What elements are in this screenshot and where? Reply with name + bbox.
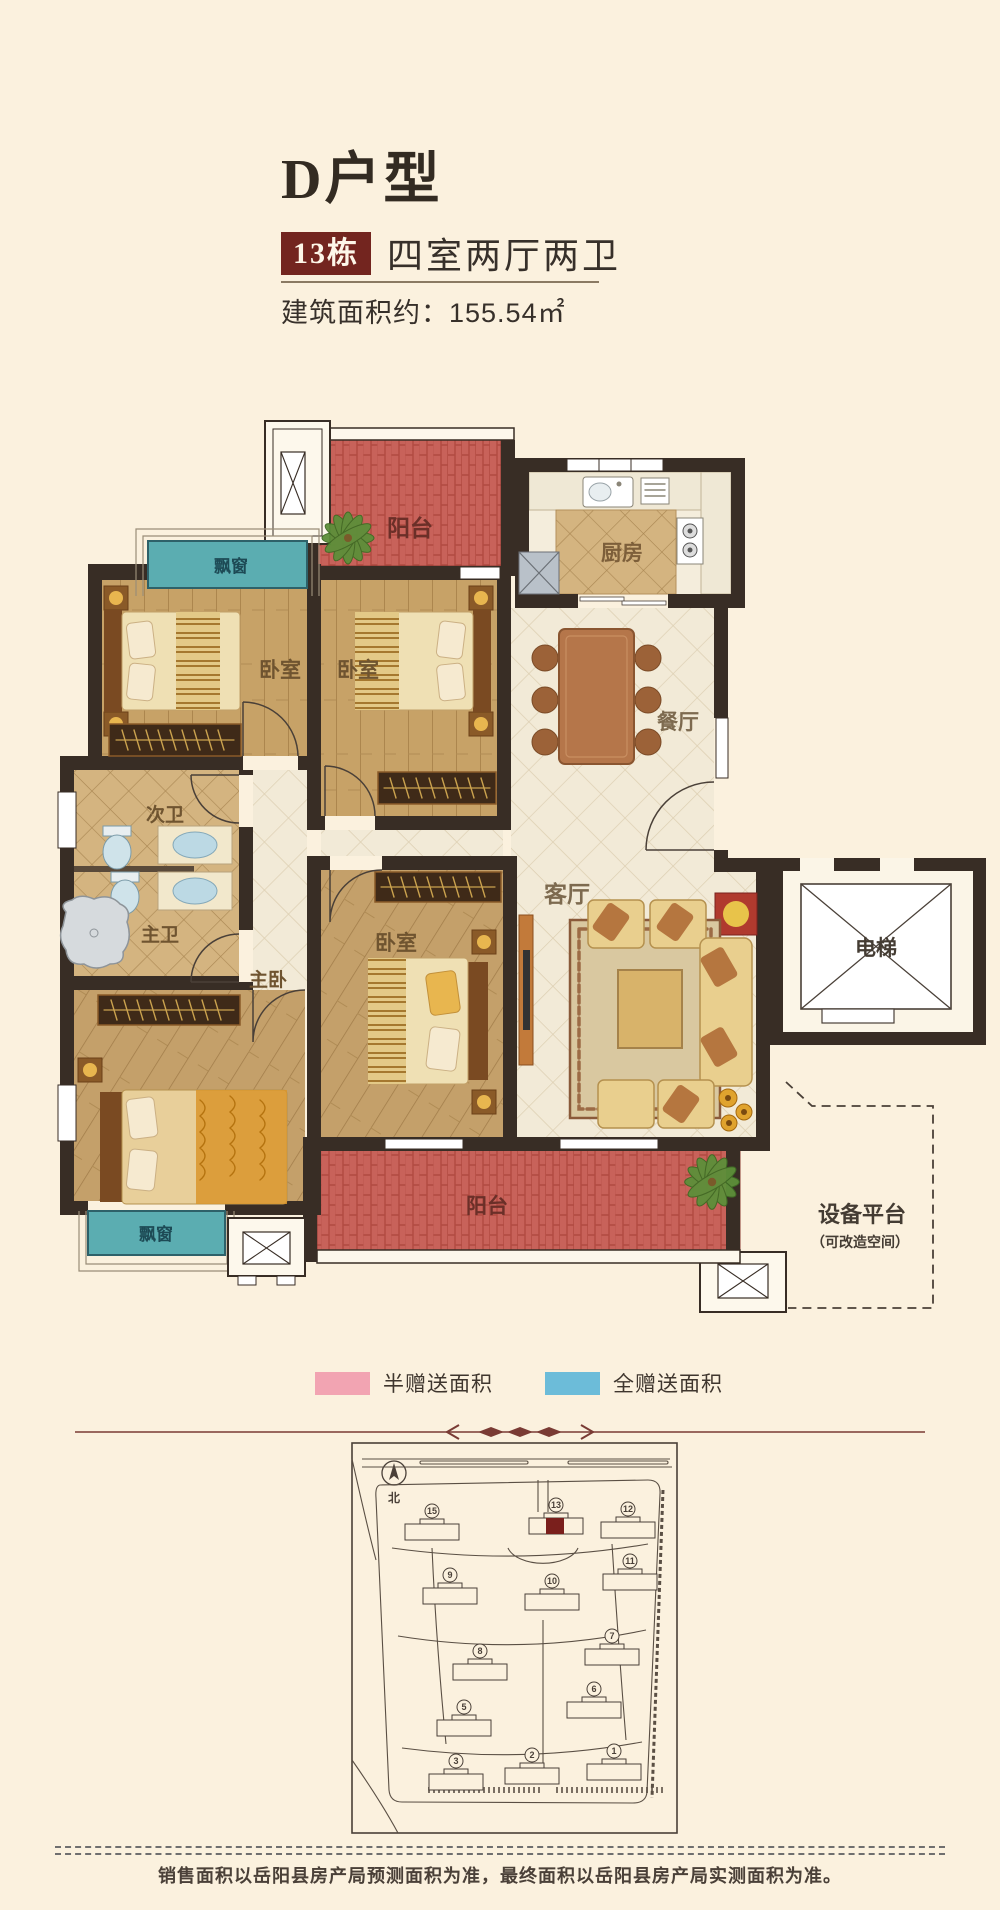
svg-text:2: 2 — [529, 1750, 534, 1760]
bedroom3-window — [385, 1139, 463, 1149]
label-equipment: 设备平台 — [818, 1202, 906, 1227]
legend-item-full-gift: 全赠送面积 — [545, 1371, 723, 1395]
label-bath1: 主卫 — [141, 924, 179, 946]
balcony-bottom-rail — [317, 1250, 740, 1263]
svg-text:3: 3 — [453, 1756, 458, 1766]
disclaimer-text: 销售面积以岳阳县房产局预测面积为准，最终面积以岳阳县房产局实测面积为准。 — [0, 1862, 1000, 1888]
siteplan-building: 13 — [529, 1498, 583, 1534]
label-balcony-top: 阳台 — [387, 515, 433, 541]
footer-divider — [55, 1846, 945, 1855]
master-window — [58, 1085, 76, 1141]
label-equipment-note: （可改造空间） — [811, 1234, 909, 1250]
svg-text:6: 6 — [591, 1684, 596, 1694]
poster-page: D户型 13栋 四室两厅两卫 建筑面积约：155.54㎡ — [0, 0, 1000, 1910]
svg-text:8: 8 — [477, 1646, 482, 1656]
label-bay-top: 飘窗 — [214, 556, 248, 576]
living-window — [560, 1139, 658, 1149]
svg-text:13: 13 — [551, 1500, 561, 1510]
kitchen-window — [567, 459, 663, 471]
bath-window — [58, 792, 76, 848]
svg-text:1: 1 — [611, 1746, 616, 1756]
svg-text:9: 9 — [447, 1570, 452, 1580]
north-compass: 北 — [382, 1461, 406, 1505]
label-dining: 餐厅 — [657, 710, 699, 734]
label-bay-bottom: 飘窗 — [139, 1224, 173, 1244]
siteplan-building: 15 — [405, 1504, 459, 1540]
dining-window — [716, 718, 728, 778]
siteplan-building: 6 — [567, 1682, 621, 1718]
corridor-floor — [253, 770, 307, 990]
balcony-door-window — [460, 567, 500, 579]
svg-text:10: 10 — [547, 1576, 557, 1586]
siteplan-building: 5 — [437, 1700, 491, 1736]
siteplan: 北 151312910118756321 — [352, 1443, 677, 1833]
label-bedroom2: 卧室 — [337, 658, 379, 682]
siteplan-building: 9 — [423, 1568, 477, 1604]
hallway-floor — [321, 830, 503, 856]
label-bedroom1: 卧室 — [259, 658, 301, 682]
siteplan-building: 3 — [429, 1754, 483, 1790]
svg-text:12: 12 — [623, 1504, 633, 1514]
dining-table — [532, 629, 661, 764]
siteplan-building: 11 — [603, 1554, 657, 1590]
svg-text:5: 5 — [461, 1702, 466, 1712]
siteplan-building: 10 — [525, 1574, 579, 1610]
svg-text:11: 11 — [625, 1556, 635, 1566]
window-shaft-top — [265, 421, 330, 544]
label-elevator: 电梯 — [855, 936, 897, 960]
label-bedroom3: 卧室 — [375, 931, 417, 955]
section-divider — [75, 1425, 925, 1439]
label-master: 主卧 — [249, 969, 287, 991]
legend-item-half-gift: 半赠送面积 — [315, 1371, 493, 1395]
siteplan-building: 8 — [453, 1644, 507, 1680]
label-bath2: 次卫 — [146, 803, 184, 826]
legend-label-full-gift: 全赠送面积 — [613, 1368, 723, 1398]
legend-swatch-blue — [545, 1372, 600, 1395]
coffee-table — [618, 970, 682, 1048]
svg-text:15: 15 — [427, 1506, 437, 1516]
balcony-top-rail — [318, 428, 514, 440]
svg-text:7: 7 — [609, 1631, 614, 1641]
siteplan-building: 7 — [585, 1629, 639, 1665]
bathtub — [61, 896, 130, 968]
label-living: 客厅 — [544, 881, 590, 907]
legend-label-half-gift: 半赠送面积 — [383, 1368, 493, 1398]
equipment-platform-outline — [786, 1082, 933, 1308]
north-label: 北 — [388, 1490, 400, 1505]
floorplan-drawing: 阳台 厨房 卧室 卧室 餐厅 次卫 主卫 主卧 卧室 客厅 电梯 飘窗 飘窗 阳… — [0, 0, 1000, 1910]
label-kitchen: 厨房 — [601, 541, 643, 565]
balcony-bottom-floor — [317, 1147, 740, 1250]
siteplan-building: 12 — [601, 1502, 655, 1538]
label-balcony-bottom: 阳台 — [466, 1194, 508, 1218]
window-shaft-bottom-left — [228, 1218, 305, 1285]
legend-swatch-pink — [315, 1372, 370, 1395]
